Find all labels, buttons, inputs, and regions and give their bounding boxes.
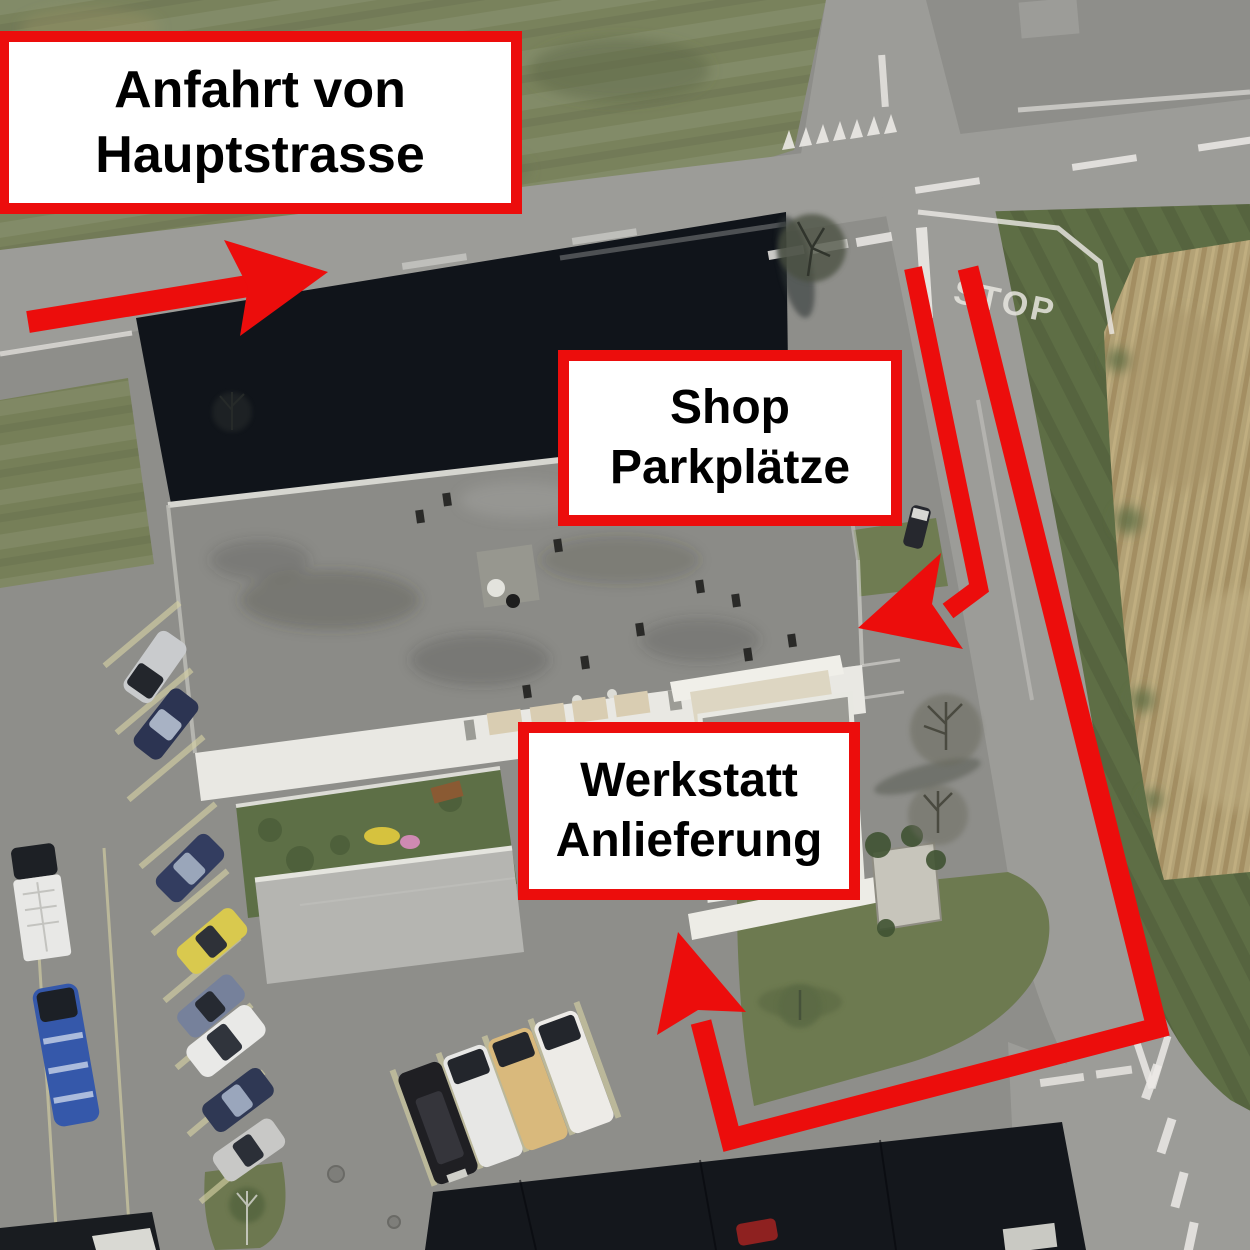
label-werkstatt-anlieferung: Werkstatt Anlieferung <box>518 722 860 900</box>
label-werkstatt-line2: Anlieferung <box>556 811 823 871</box>
label-anfahrt-von-hauptstrasse: Anfahrt von Hauptstrasse <box>0 31 522 214</box>
label-werkstatt-line1: Werkstatt <box>580 751 798 811</box>
arrow-from-hauptstrasse <box>28 240 328 336</box>
label-anfahrt-line1: Anfahrt von <box>114 58 406 122</box>
label-shop-parkplaetze: Shop Parkplätze <box>558 350 902 526</box>
label-anfahrt-line2: Hauptstrasse <box>95 123 424 187</box>
label-shop-line2: Parkplätze <box>610 438 850 498</box>
label-shop-line1: Shop <box>670 378 790 438</box>
annotated-aerial-map: STOP <box>0 0 1250 1250</box>
